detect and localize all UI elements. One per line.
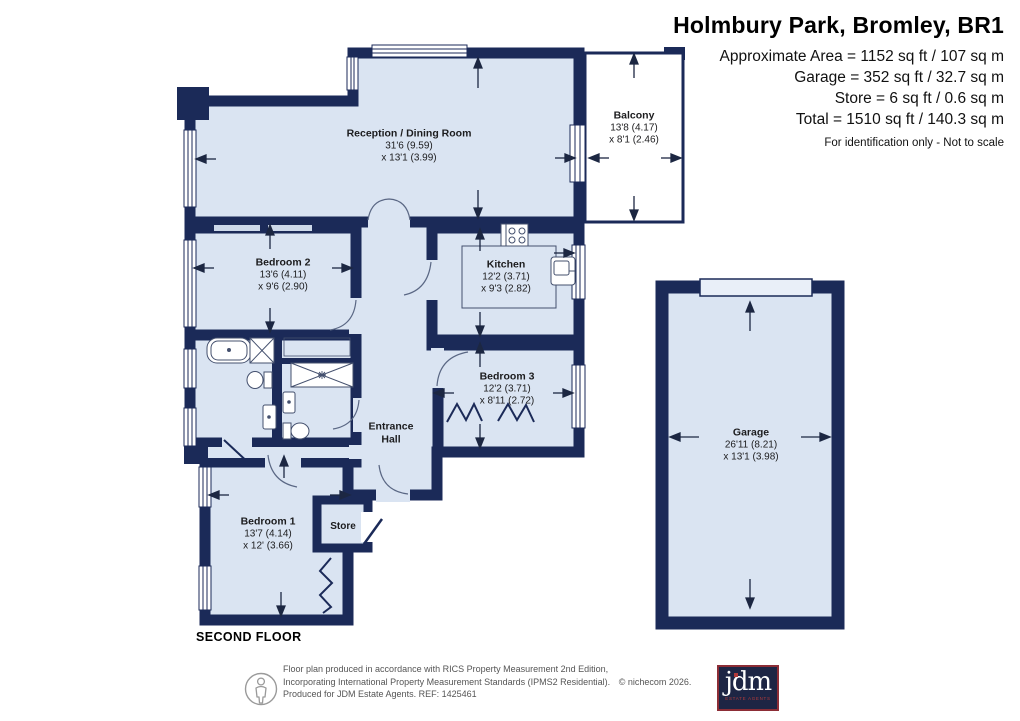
page-title: Holmbury Park, Bromley, BR1 [673, 12, 1004, 39]
window-icon [372, 45, 467, 57]
window-icon [184, 408, 196, 446]
sink-icon [551, 257, 575, 285]
balcony-door-icon [570, 125, 585, 182]
hob-icon [501, 224, 528, 246]
area-line: Approximate Area = 1152 sq ft / 107 sq m [673, 46, 1004, 67]
copyright: © nichecom 2026. [619, 677, 692, 687]
shower-icon [291, 363, 353, 387]
toilet-icon [247, 372, 272, 389]
wardrobe-icon [214, 225, 260, 231]
footer-line3: Produced for JDM Estate Agents. REF: 142… [283, 688, 691, 701]
footer-line1: Floor plan produced in accordance with R… [283, 663, 691, 676]
window-icon [199, 467, 211, 507]
toilet-icon [283, 423, 309, 439]
bathtub-icon [207, 338, 251, 363]
room-label-garage: Garage 26'11 (8.21) x 13'1 (3.98) [723, 426, 778, 464]
header: Holmbury Park, Bromley, BR1 Approximate … [673, 12, 1004, 149]
window-icon [572, 365, 585, 428]
room-label-bedroom2: Bedroom 2 13'6 (4.11) x 9'6 (2.90) [256, 256, 311, 294]
floor-label: SECOND FLOOR [196, 630, 302, 644]
garage-door [700, 279, 812, 296]
person-icon [243, 670, 279, 713]
area-line: Garage = 352 sq ft / 32.7 sq m [673, 67, 1004, 88]
room-label-reception: Reception / Dining Room 31'6 (9.59) x 13… [347, 127, 472, 165]
window-icon [184, 349, 196, 388]
jdm-logo-subtext: ESTATE AGENTS [719, 696, 777, 702]
window-icon [347, 57, 358, 90]
window-icon [199, 566, 211, 610]
footer-text: Floor plan produced in accordance with R… [283, 663, 691, 701]
area-line: Store = 6 sq ft / 0.6 sq m [673, 88, 1004, 109]
room-label-kitchen: Kitchen 12'2 (3.71) x 9'3 (2.82) [481, 258, 531, 296]
window-icon [184, 240, 196, 327]
window-icon [184, 130, 196, 207]
wardrobe-icon [268, 225, 312, 231]
shower-icon [250, 338, 274, 363]
jdm-logo-text: jdm [719, 668, 777, 696]
footer-line2: Incorporating International Property Mea… [283, 676, 691, 689]
room-label-balcony: Balcony 13'8 (4.17) x 8'1 (2.46) [609, 109, 659, 147]
room-label-entrance-hall: Entrance Hall [369, 421, 414, 446]
area-line: Total = 1510 sq ft / 140.3 sq m [673, 109, 1004, 130]
room-label-bedroom3: Bedroom 3 12'2 (3.71) x 8'11 (2.72) [480, 370, 535, 408]
jdm-logo: jdm ESTATE AGENTS [717, 665, 779, 711]
disclaimer: For identification only - Not to scale [673, 137, 1004, 149]
room-label-store: Store [330, 521, 356, 534]
sink-icon [263, 405, 276, 429]
sink-icon [283, 392, 295, 413]
room-label-bedroom1: Bedroom 1 13'7 (4.14) x 12' (3.66) [241, 515, 296, 553]
jdm-logo-dot [734, 673, 738, 677]
floorplan-page: Holmbury Park, Bromley, BR1 Approximate … [0, 0, 1020, 721]
